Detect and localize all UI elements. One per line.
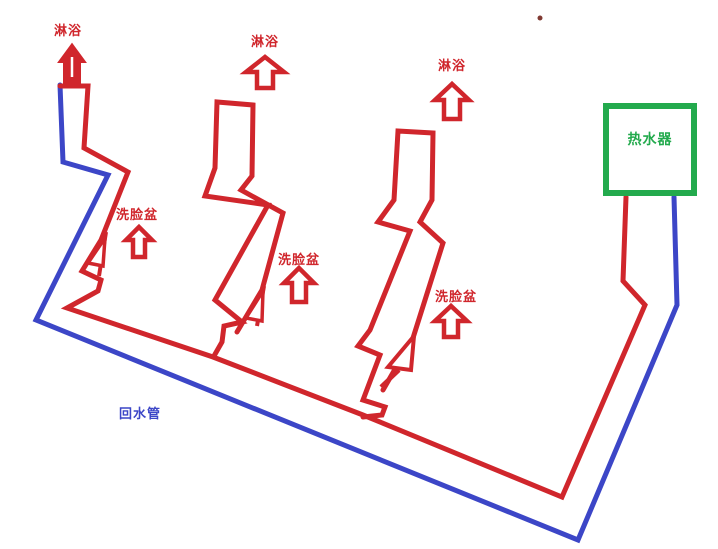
basin-arrow-icon [435,306,467,337]
shower-label-2: 淋浴 [251,31,279,50]
hot-water-pipe-branch-3 [358,131,443,417]
basin-label-3: 洗脸盆 [435,286,477,305]
basin-label-1: 洗脸盆 [116,204,158,223]
shower-label-3: 淋浴 [438,55,466,74]
stray-mark [538,16,543,21]
basin-arrow-icon [284,268,314,302]
water-heater-label: 热水器 [609,129,691,149]
water-heater-box: 热水器 [603,103,697,196]
shower-arrow-icon [435,84,469,119]
plumbing-diagram [0,0,718,549]
shower-arrow-icon [61,46,83,82]
basin-label-2: 洗脸盆 [278,249,320,268]
return-water-pipe [36,85,677,540]
valve-flag-icon [246,286,264,326]
basin-arrow-icon [126,227,152,257]
shower-arrow-icon [246,57,284,88]
paint-canvas: 热水器 淋浴 淋浴 淋浴 洗脸盆 洗脸盆 洗脸盆 回水管 [0,0,718,549]
return-pipe-label: 回水管 [119,403,161,422]
hot-water-pipe-main [60,86,645,497]
shower-label-1: 淋浴 [54,20,82,39]
valve-flag-icon [381,336,414,387]
